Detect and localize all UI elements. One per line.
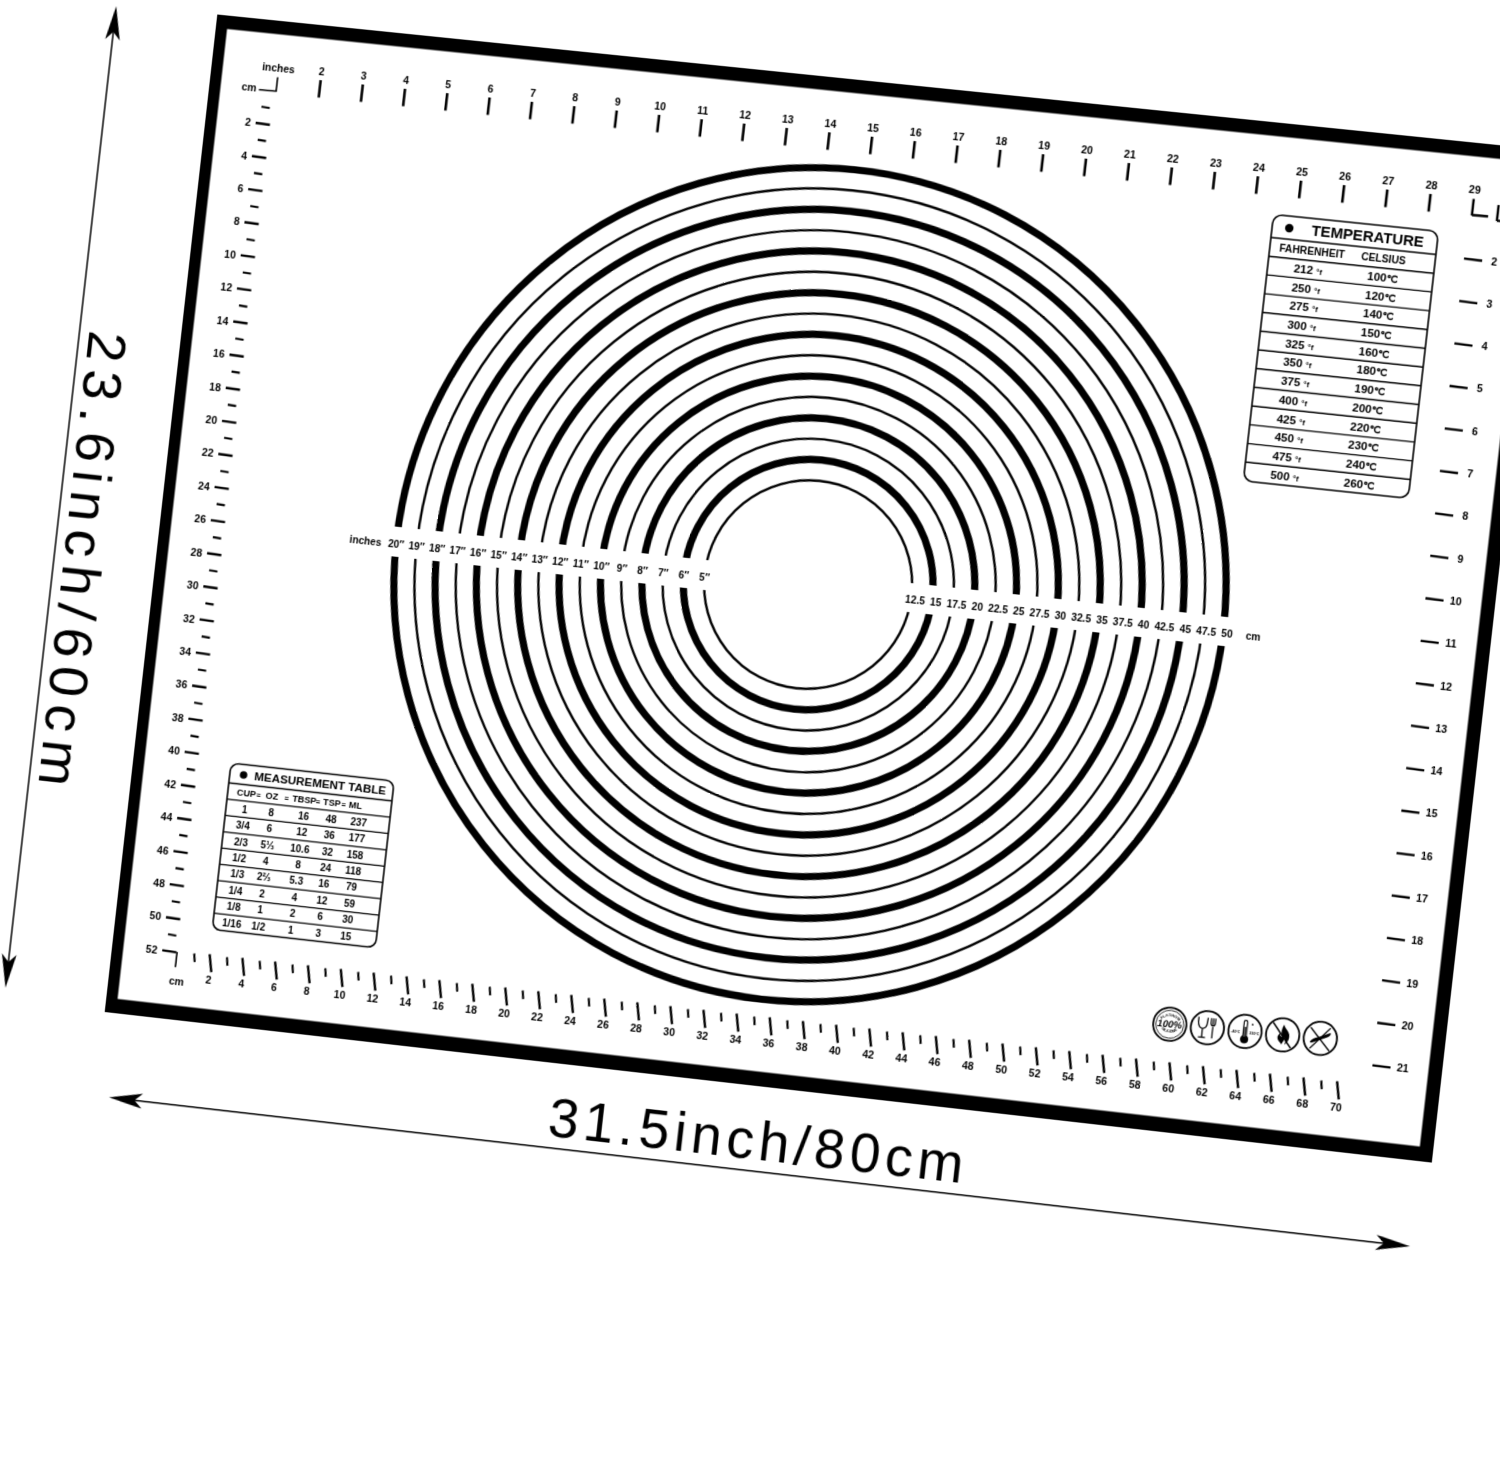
svg-text:36: 36 — [762, 1039, 775, 1051]
svg-text:16: 16 — [212, 349, 225, 361]
svg-text:12: 12 — [296, 827, 309, 839]
svg-text:19: 19 — [1038, 141, 1051, 153]
svg-text:15: 15 — [1425, 809, 1438, 821]
svg-text:46: 46 — [156, 845, 169, 857]
svg-text:21: 21 — [1396, 1063, 1409, 1076]
svg-text:177: 177 — [348, 833, 366, 846]
svg-text:16: 16 — [318, 879, 331, 891]
svg-text:23: 23 — [1209, 158, 1222, 170]
svg-text:30: 30 — [1054, 611, 1067, 623]
svg-text:45: 45 — [1179, 624, 1192, 636]
svg-text:12″: 12″ — [551, 556, 568, 569]
svg-text:1/3: 1/3 — [230, 869, 245, 882]
svg-text:40: 40 — [828, 1046, 841, 1058]
svg-text:16″: 16″ — [469, 548, 486, 561]
svg-text:18: 18 — [209, 382, 222, 394]
svg-text:12: 12 — [739, 110, 752, 122]
svg-text:68: 68 — [1296, 1099, 1309, 1111]
svg-text:42: 42 — [861, 1050, 874, 1062]
svg-text:237: 237 — [350, 817, 368, 830]
svg-text:24: 24 — [563, 1016, 576, 1028]
svg-text:18″: 18″ — [428, 543, 445, 556]
svg-text:16: 16 — [1420, 851, 1433, 863]
svg-text:12: 12 — [366, 994, 379, 1006]
svg-text:CUP: CUP — [236, 787, 256, 799]
svg-text:19″: 19″ — [408, 541, 425, 554]
svg-text:10: 10 — [1449, 596, 1462, 608]
svg-text:1/2: 1/2 — [251, 921, 266, 934]
svg-text:22: 22 — [1166, 154, 1179, 166]
svg-text:38: 38 — [795, 1042, 808, 1054]
svg-text:20: 20 — [1080, 145, 1093, 157]
svg-text:5⅓: 5⅓ — [260, 840, 275, 853]
svg-text:10.6: 10.6 — [290, 843, 311, 856]
svg-text:28: 28 — [1425, 180, 1438, 192]
svg-text:9″: 9″ — [616, 563, 628, 575]
svg-text:30: 30 — [186, 580, 199, 592]
svg-text:15: 15 — [340, 931, 353, 943]
svg-text:42.5: 42.5 — [1154, 621, 1176, 634]
svg-text:12: 12 — [316, 895, 329, 907]
svg-text:12: 12 — [1439, 681, 1452, 693]
svg-text:19: 19 — [1406, 978, 1419, 990]
svg-text:40: 40 — [168, 746, 181, 758]
svg-text:24: 24 — [319, 863, 332, 875]
svg-text:50: 50 — [995, 1065, 1008, 1077]
svg-text:5.3: 5.3 — [289, 876, 304, 889]
svg-text:26: 26 — [596, 1020, 609, 1032]
svg-text:38: 38 — [171, 713, 184, 725]
svg-text:32: 32 — [321, 846, 334, 858]
svg-text:118: 118 — [344, 866, 362, 879]
svg-text:59: 59 — [343, 898, 356, 910]
svg-text:15: 15 — [929, 597, 942, 609]
svg-text:48: 48 — [961, 1061, 974, 1073]
svg-text:52: 52 — [145, 944, 158, 956]
svg-text:16: 16 — [297, 811, 310, 823]
svg-text:17: 17 — [952, 132, 965, 144]
svg-text:54: 54 — [1061, 1073, 1074, 1085]
svg-text:46: 46 — [928, 1057, 941, 1069]
svg-text:14: 14 — [1430, 766, 1443, 778]
svg-text:1/8: 1/8 — [226, 902, 241, 915]
svg-text:27.5: 27.5 — [1029, 608, 1050, 621]
svg-text:20: 20 — [1401, 1021, 1414, 1033]
svg-text:14: 14 — [824, 119, 837, 131]
svg-text:23.6inch/60cm: 23.6inch/60cm — [26, 328, 138, 797]
svg-text:2⅔: 2⅔ — [256, 872, 271, 885]
svg-text:29: 29 — [1468, 185, 1481, 197]
svg-text:25: 25 — [1295, 167, 1308, 179]
svg-text:3/4: 3/4 — [235, 820, 250, 833]
svg-text:158: 158 — [346, 849, 364, 862]
svg-text:79: 79 — [345, 882, 358, 894]
svg-text:2/3: 2/3 — [233, 837, 248, 850]
svg-text:16: 16 — [909, 127, 922, 139]
svg-text:20: 20 — [205, 415, 218, 427]
svg-text:50: 50 — [1221, 629, 1234, 641]
svg-text:10: 10 — [224, 249, 237, 261]
svg-text:24: 24 — [197, 481, 210, 493]
svg-text:50: 50 — [149, 911, 162, 923]
svg-text:37.5: 37.5 — [1112, 617, 1134, 630]
svg-text:11: 11 — [1445, 639, 1458, 651]
svg-text:14: 14 — [399, 998, 412, 1010]
svg-text:36: 36 — [175, 680, 188, 692]
svg-text:13: 13 — [1435, 724, 1448, 736]
svg-text:32.5: 32.5 — [1070, 612, 1091, 625]
svg-text:22: 22 — [530, 1013, 543, 1025]
svg-text:17.5: 17.5 — [946, 599, 967, 612]
svg-text:48: 48 — [153, 878, 166, 890]
svg-text:60: 60 — [1162, 1084, 1175, 1096]
svg-text:11″: 11″ — [572, 559, 589, 572]
svg-text:15″: 15″ — [490, 550, 507, 563]
svg-text:52: 52 — [1028, 1069, 1041, 1081]
svg-text:11: 11 — [696, 106, 708, 118]
svg-text:14″: 14″ — [510, 552, 527, 565]
svg-text:16: 16 — [432, 1001, 445, 1013]
svg-text:13: 13 — [781, 114, 794, 126]
svg-text:24: 24 — [1252, 163, 1265, 175]
svg-text:10: 10 — [654, 101, 667, 113]
svg-text:28: 28 — [629, 1024, 642, 1036]
svg-text:10″: 10″ — [593, 561, 610, 574]
svg-text:26: 26 — [1339, 171, 1352, 183]
svg-text:27: 27 — [1382, 176, 1395, 188]
svg-text:48: 48 — [325, 814, 338, 826]
svg-text:ML: ML — [348, 800, 363, 812]
svg-text:34: 34 — [729, 1035, 742, 1047]
svg-text:5″: 5″ — [698, 572, 710, 584]
svg-text:20″: 20″ — [387, 539, 404, 552]
svg-text:cm: cm — [1245, 631, 1261, 644]
svg-text:34: 34 — [179, 647, 192, 659]
svg-text:56: 56 — [1095, 1076, 1108, 1088]
svg-text:47.5: 47.5 — [1195, 626, 1217, 639]
svg-text:42: 42 — [164, 779, 177, 791]
svg-text:13″: 13″ — [531, 554, 548, 567]
svg-text:20: 20 — [497, 1009, 510, 1021]
svg-text:1/4: 1/4 — [228, 886, 243, 899]
svg-text:12: 12 — [220, 283, 233, 295]
svg-text:66: 66 — [1262, 1095, 1275, 1107]
svg-text:58: 58 — [1128, 1080, 1141, 1092]
svg-text:OZ: OZ — [265, 791, 279, 802]
svg-text:12.5: 12.5 — [904, 595, 925, 608]
svg-text:cm: cm — [241, 83, 257, 96]
svg-text:30: 30 — [663, 1027, 676, 1039]
svg-text:32: 32 — [696, 1031, 709, 1043]
svg-text:17: 17 — [1415, 894, 1428, 906]
svg-text:32: 32 — [182, 614, 195, 626]
svg-text:40: 40 — [1137, 620, 1150, 632]
svg-text:cm: cm — [168, 976, 184, 989]
svg-text:17″: 17″ — [449, 545, 466, 558]
svg-text:10: 10 — [333, 990, 346, 1002]
svg-text:35: 35 — [1096, 615, 1109, 627]
svg-text:14: 14 — [216, 316, 229, 328]
svg-text:36: 36 — [323, 830, 336, 842]
svg-text:18: 18 — [1410, 936, 1423, 948]
svg-text:22.5: 22.5 — [987, 603, 1008, 616]
svg-text:15: 15 — [867, 123, 880, 135]
svg-text:18: 18 — [465, 1005, 478, 1017]
svg-text:70: 70 — [1329, 1103, 1342, 1116]
svg-text:18: 18 — [995, 136, 1008, 148]
svg-text:6″: 6″ — [678, 570, 690, 582]
svg-text:30: 30 — [341, 915, 354, 927]
svg-text:1/2: 1/2 — [232, 853, 247, 866]
svg-text:22: 22 — [201, 448, 214, 460]
svg-text:7″: 7″ — [657, 568, 669, 580]
svg-text:26: 26 — [194, 514, 207, 526]
svg-text:44: 44 — [895, 1054, 908, 1066]
svg-text:64: 64 — [1229, 1091, 1242, 1103]
svg-text:8″: 8″ — [637, 566, 649, 578]
svg-text:21: 21 — [1123, 149, 1136, 161]
svg-text:20: 20 — [971, 602, 984, 614]
svg-text:28: 28 — [190, 547, 203, 559]
svg-text:1/16: 1/16 — [222, 918, 243, 931]
svg-text:TSP: TSP — [323, 797, 342, 809]
svg-text:62: 62 — [1195, 1088, 1208, 1100]
svg-text:44: 44 — [160, 812, 173, 824]
svg-text:25: 25 — [1012, 606, 1025, 618]
